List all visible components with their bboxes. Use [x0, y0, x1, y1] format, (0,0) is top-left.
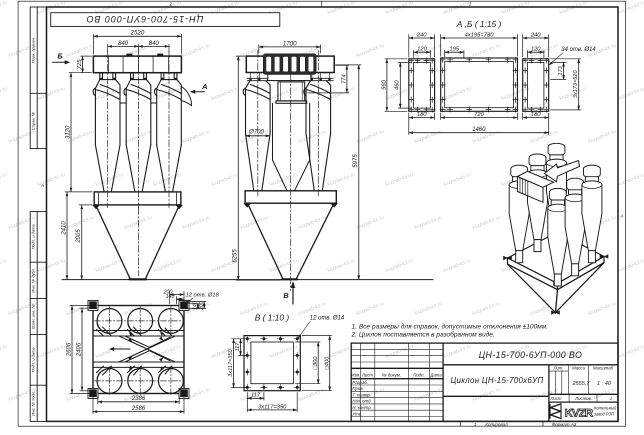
svg-text:1700: 1700 — [283, 40, 297, 47]
svg-text:А: А — [201, 82, 207, 91]
svg-text:завод РЗП: завод РЗП — [593, 412, 614, 417]
svg-text:А ,Б ( 1:15 ): А ,Б ( 1:15 ) — [456, 19, 502, 29]
svg-text:240: 240 — [416, 32, 427, 38]
svg-text:А: А — [40, 183, 44, 188]
svg-text:2520: 2520 — [130, 30, 145, 37]
svg-text:117: 117 — [235, 342, 241, 352]
svg-text:1 : 40: 1 : 40 — [597, 381, 612, 387]
svg-text:Разраб.: Разраб. — [352, 380, 368, 385]
svg-text:1: 1 — [469, 2, 472, 8]
svg-text:2555,7: 2555,7 — [571, 381, 590, 387]
svg-text:ЦН-15-700-6УП-000 ВО: ЦН-15-700-6УП-000 ВО — [86, 14, 204, 24]
svg-text:2005: 2005 — [76, 229, 82, 244]
svg-text:Инв. № дубл.: Инв. № дубл. — [31, 268, 36, 293]
svg-text:840: 840 — [149, 41, 160, 47]
svg-text:Лист: Лист — [361, 373, 373, 378]
svg-text:720: 720 — [474, 112, 484, 118]
svg-text:12 отв. Ø14: 12 отв. Ø14 — [310, 316, 345, 322]
svg-text:2410: 2410 — [61, 221, 67, 236]
svg-text:□400: □400 — [324, 356, 330, 370]
svg-text:34 отв. Ø14: 34 отв. Ø14 — [561, 47, 596, 53]
svg-text:140: 140 — [193, 301, 199, 310]
svg-text:195: 195 — [449, 47, 459, 53]
svg-text:2. Циклон поставляется в разоб: 2. Циклон поставляется в разобранном вид… — [351, 331, 495, 339]
svg-text:KVZR: KVZR — [565, 408, 593, 420]
svg-text:6255: 6255 — [233, 249, 239, 263]
svg-text:725: 725 — [77, 59, 83, 69]
svg-text:Б: Б — [57, 52, 62, 61]
svg-text:2: 2 — [168, 2, 172, 8]
svg-text:4x195=780: 4x195=780 — [465, 32, 495, 38]
svg-text:Лит.: Лит. — [552, 366, 563, 371]
svg-text:2386: 2386 — [131, 396, 146, 402]
svg-text:3x173=520: 3x173=520 — [573, 69, 579, 98]
svg-text:Пров.: Пров. — [352, 386, 363, 391]
svg-text:560: 560 — [381, 79, 387, 89]
svg-text:Подп. и дата: Подп. и дата — [31, 224, 36, 250]
svg-text:Котельный: Котельный — [594, 406, 617, 411]
svg-text:В: В — [283, 291, 289, 300]
svg-text:А: А — [619, 214, 623, 219]
svg-text:Листов: Листов — [574, 396, 591, 401]
svg-text:Ø700: Ø700 — [248, 130, 264, 136]
svg-text:840: 840 — [118, 41, 129, 47]
svg-text:Циклон ЦН-15-700х6УП: Циклон ЦН-15-700х6УП — [451, 376, 544, 385]
svg-text:Масса: Масса — [572, 366, 585, 371]
svg-text:□300: □300 — [313, 356, 319, 370]
svg-text:Формат А3: Формат А3 — [552, 422, 577, 427]
svg-text:Дата: Дата — [429, 373, 442, 378]
svg-text:3120: 3120 — [65, 125, 71, 139]
svg-text:Копировал: Копировал — [485, 422, 508, 427]
svg-text:1. Все размеры для справок, до: 1. Все размеры для справок, допустимые о… — [352, 322, 549, 330]
svg-text:180: 180 — [417, 112, 427, 118]
svg-text:3x117=350: 3x117=350 — [258, 404, 287, 410]
svg-text:Утв.: Утв. — [352, 411, 362, 416]
svg-text:ЦН-15-700-6УП-000 ВО: ЦН-15-700-6УП-000 ВО — [479, 350, 582, 360]
svg-text:Взам. инв. №: Взам. инв. № — [31, 303, 36, 328]
svg-text:12 отв. Ø18: 12 отв. Ø18 — [186, 293, 220, 299]
svg-text:Перв. примен.: Перв. примен. — [31, 37, 36, 64]
svg-text:5975: 5975 — [353, 154, 359, 168]
svg-text:173: 173 — [558, 65, 564, 75]
svg-text:240: 240 — [530, 32, 541, 38]
svg-text:120: 120 — [531, 47, 541, 53]
svg-text:Лист: Лист — [549, 396, 561, 401]
svg-text:Справ. №: Справ. № — [31, 111, 36, 130]
svg-text:Н. контр.: Н. контр. — [352, 405, 371, 410]
svg-text:2606: 2606 — [66, 342, 72, 357]
svg-text:117: 117 — [251, 393, 261, 399]
svg-text:460: 460 — [395, 80, 401, 90]
svg-text:120: 120 — [417, 47, 427, 53]
svg-text:№ докум.: № докум. — [382, 373, 401, 378]
svg-text:140: 140 — [166, 294, 175, 300]
svg-text:180: 180 — [531, 112, 541, 118]
svg-text:Нач. отд.: Нач. отд. — [352, 399, 371, 404]
svg-text:Т. контр.: Т. контр. — [352, 392, 371, 397]
svg-text:В ( 1:10 ): В ( 1:10 ) — [255, 313, 290, 323]
svg-text:1460: 1460 — [472, 127, 486, 133]
svg-text:Подп.: Подп. — [413, 373, 424, 378]
svg-text:774: 774 — [341, 74, 347, 84]
svg-text:3x117=350: 3x117=350 — [228, 349, 234, 377]
svg-text:Масштаб: Масштаб — [593, 366, 614, 371]
svg-text:Изм.: Изм. — [351, 373, 360, 378]
svg-text:Подп. и дата: Подп. и дата — [31, 347, 36, 373]
svg-text:Инв. № подл.: Инв. № подл. — [31, 391, 36, 416]
svg-text:2586: 2586 — [131, 406, 146, 412]
svg-text:200: 200 — [199, 301, 205, 311]
svg-text:2406: 2406 — [76, 342, 82, 357]
